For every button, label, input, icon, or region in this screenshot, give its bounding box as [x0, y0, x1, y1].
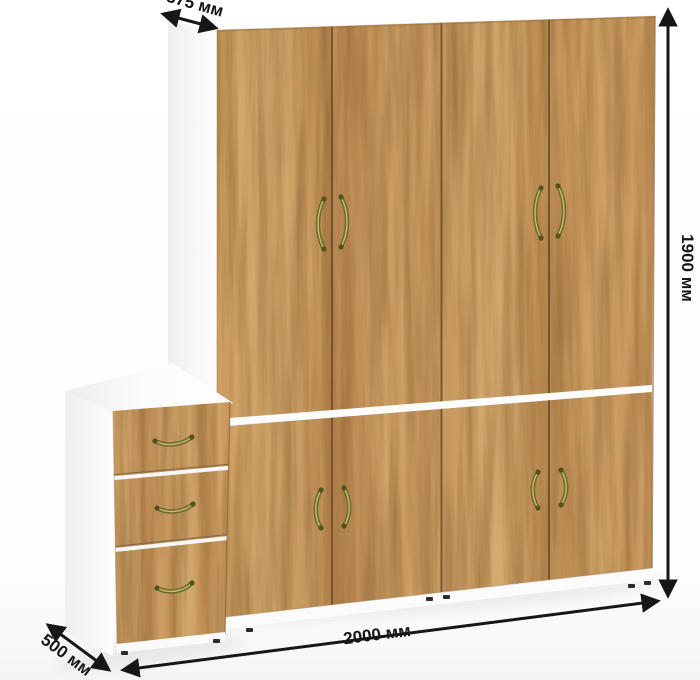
dimension-label-height: 1900 мм — [678, 234, 697, 302]
drawer-cabinet — [65, 363, 235, 656]
product-diagram: 375 мм 1900 мм 2000 мм 500 мм — [0, 0, 700, 680]
wardrobe-diagram-canvas: 375 мм 1900 мм 2000 мм 500 мм — [0, 0, 700, 680]
wardrobe — [168, 5, 660, 632]
upper-doors — [210, 5, 660, 430]
drawer-fronts — [110, 398, 235, 648]
cabinet-side-panel — [65, 390, 113, 656]
